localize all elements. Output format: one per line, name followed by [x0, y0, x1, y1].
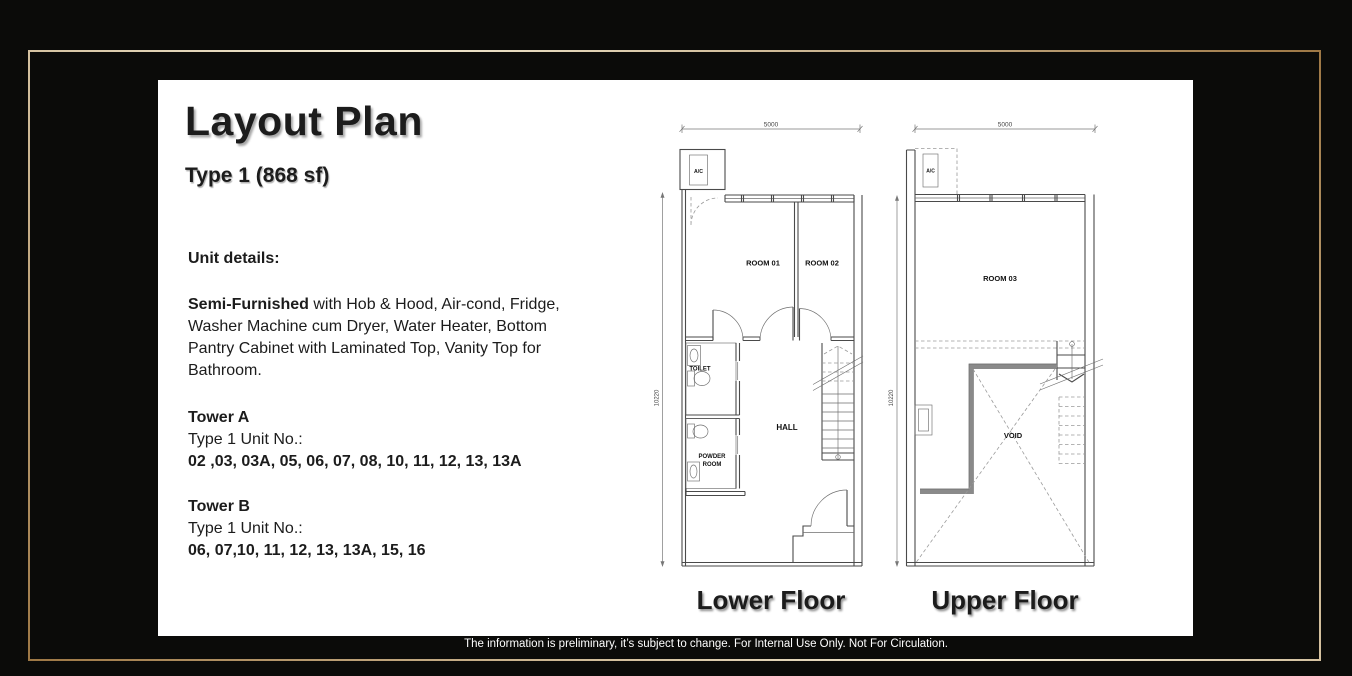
lower-window-band [725, 195, 854, 202]
entry-door [793, 490, 854, 563]
room03-label: ROOM 03 [983, 274, 1017, 283]
tower-a-block: Tower A Type 1 Unit No.: 02 ,03, 03A, 05… [188, 407, 522, 473]
toilet-bowl [694, 372, 710, 386]
void-label: VOID [1004, 431, 1023, 440]
lower-height-dim-label: 10220 [655, 389, 661, 406]
toilet-cistern [688, 371, 695, 386]
lower-floor-plan: 5000 10220 A/C [650, 113, 870, 573]
tower-b-name: Tower B [188, 496, 426, 518]
upper-ac-label: A/C [926, 169, 935, 175]
upper-floor-caption: Upper Floor [920, 585, 1090, 616]
hall-right-door [800, 309, 832, 341]
powder-label-line2: ROOM [703, 462, 722, 468]
page-title: Layout Plan [185, 98, 423, 145]
lower-ac-label: A/C [694, 169, 703, 175]
details-lead: Semi-Furnished [188, 296, 309, 313]
void-cross-lines [915, 369, 1090, 564]
powder-cistern [688, 424, 695, 438]
slide-panel: Layout Plan Type 1 (868 sf) Unit details… [158, 80, 1193, 636]
unit-details-paragraph: Semi-Furnished with Hob & Hood, Air-cond… [188, 294, 658, 382]
hall-left-door [760, 307, 793, 341]
powder-bowl [693, 425, 708, 438]
room03-void-boundary [915, 341, 1085, 348]
lower-right-bottom-walls [682, 195, 862, 566]
tower-b-block: Tower B Type 1 Unit No.: 06, 07,10, 11, … [188, 496, 426, 562]
room01-door [713, 310, 743, 341]
upper-bottom-wall [907, 563, 1095, 567]
lower-left-dimension: 10220 [655, 192, 665, 567]
powder-room: POWDER ROOM [686, 419, 745, 496]
tower-b-type-label: Type 1 Unit No.: [188, 518, 426, 540]
upper-window-band [915, 195, 1085, 202]
upper-height-dim-label: 10220 [889, 389, 895, 406]
room02-label: ROOM 02 [805, 259, 839, 268]
lower-floor-caption: Lower Floor [686, 585, 856, 616]
toilet-label: TOILET [689, 367, 711, 373]
room-divider-wall [795, 202, 799, 337]
lower-ac-closet: A/C [680, 150, 725, 226]
room01-label: ROOM 01 [746, 259, 780, 268]
subtitle-type: Type 1 (868 sf) [185, 164, 329, 188]
powder-label-line1: POWDER [699, 454, 727, 460]
disclaimer-text: The information is preliminary, it’s sub… [30, 638, 1352, 650]
upper-staircase-dashed [1059, 397, 1085, 464]
lower-width-dim-label: 5000 [764, 122, 779, 129]
lower-staircase [813, 343, 863, 460]
toilet-room: TOILET [686, 343, 740, 419]
wall-niche [915, 405, 932, 435]
hall-label: HALL [776, 423, 797, 432]
upper-width-dim-label: 5000 [998, 122, 1013, 129]
lower-top-dimension: 5000 [680, 122, 863, 134]
upper-floor-plan: 5000 10220 A/C [885, 113, 1105, 573]
upper-right-wall [1085, 195, 1094, 567]
toilet-basin [688, 346, 701, 366]
upper-left-wall [907, 150, 916, 566]
upper-top-dimension: 5000 [913, 122, 1098, 134]
tower-a-type-label: Type 1 Unit No.: [188, 429, 522, 451]
tower-a-name: Tower A [188, 407, 522, 429]
tower-b-units: 06, 07,10, 11, 12, 13, 13A, 15, 16 [188, 540, 426, 562]
upper-left-dimension: 10220 [889, 195, 899, 567]
upper-ac-closet: A/C [915, 149, 957, 195]
unit-details-heading: Unit details: [188, 250, 280, 268]
lower-left-wall [682, 190, 725, 567]
interior-wall [686, 337, 855, 341]
tower-a-units: 02 ,03, 03A, 05, 06, 07, 08, 10, 11, 12,… [188, 451, 522, 473]
